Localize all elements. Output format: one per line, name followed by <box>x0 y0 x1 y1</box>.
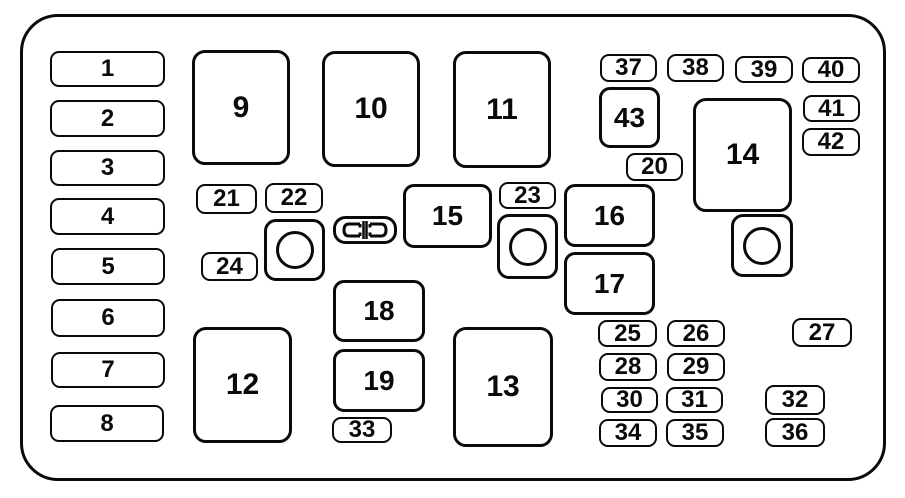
box-12: 12 <box>193 327 292 443</box>
element-number: 31 <box>681 388 708 412</box>
element-number: 4 <box>101 205 114 229</box>
fuse-25: 25 <box>598 320 657 347</box>
element-number: 20 <box>641 155 668 179</box>
fuse-4: 4 <box>50 198 165 235</box>
box-9: 9 <box>192 50 290 165</box>
fuse-28: 28 <box>599 353 657 381</box>
element-number: 19 <box>363 367 394 395</box>
relay-circle <box>276 231 314 269</box>
fuse-39: 39 <box>735 56 793 83</box>
element-number: 1 <box>101 57 114 81</box>
element-number: 3 <box>101 156 114 180</box>
element-number: 16 <box>594 202 625 230</box>
fuse-puller-icon <box>333 216 397 244</box>
box-14: 14 <box>693 98 792 212</box>
element-number: 43 <box>614 104 645 132</box>
fuse-3: 3 <box>50 150 165 186</box>
element-number: 14 <box>726 140 759 170</box>
element-number: 32 <box>782 388 809 412</box>
element-number: 10 <box>354 94 387 124</box>
fuse-21: 21 <box>196 184 257 214</box>
fuse-31: 31 <box>666 387 723 413</box>
element-number: 30 <box>616 388 643 412</box>
fuse-34: 34 <box>599 419 657 447</box>
fuse-30: 30 <box>601 387 658 413</box>
box-13: 13 <box>453 327 553 447</box>
box-11: 11 <box>453 51 551 168</box>
fuse-2: 2 <box>50 100 165 137</box>
element-number: 13 <box>486 372 519 402</box>
fuse-27: 27 <box>792 318 852 347</box>
element-number: 22 <box>281 186 308 210</box>
fuse-37: 37 <box>600 54 657 82</box>
fuse-8: 8 <box>50 405 164 442</box>
relay-circle-box-center <box>497 214 558 279</box>
relay-circle-box-right <box>731 214 793 277</box>
element-number: 7 <box>101 358 114 382</box>
box-16: 16 <box>564 184 655 247</box>
element-number: 15 <box>432 202 463 230</box>
fuse-40: 40 <box>802 57 860 83</box>
element-number: 28 <box>615 355 642 379</box>
element-number: 26 <box>683 322 710 346</box>
fuse-32: 32 <box>765 385 825 415</box>
element-number: 11 <box>486 95 518 125</box>
element-number: 6 <box>101 306 114 330</box>
element-number: 34 <box>615 421 642 445</box>
fuse-24: 24 <box>201 252 258 281</box>
element-number: 39 <box>751 58 778 82</box>
fuse-36: 36 <box>765 418 825 447</box>
fuse-29: 29 <box>667 353 725 381</box>
element-number: 36 <box>782 421 809 445</box>
fuse-38: 38 <box>667 54 724 82</box>
element-number: 8 <box>100 412 113 436</box>
box-43: 43 <box>599 87 660 148</box>
element-number: 41 <box>818 97 845 121</box>
element-number: 38 <box>682 56 709 80</box>
fuse-20: 20 <box>626 153 683 181</box>
box-10: 10 <box>322 51 420 167</box>
element-number: 33 <box>349 418 376 442</box>
element-number: 35 <box>682 421 709 445</box>
fuse-41: 41 <box>803 95 860 122</box>
element-number: 9 <box>233 93 250 123</box>
relay-circle-box-left <box>264 219 325 281</box>
fuse-42: 42 <box>802 128 860 156</box>
element-number: 40 <box>818 58 845 82</box>
box-18: 18 <box>333 280 425 342</box>
element-number: 37 <box>615 56 642 80</box>
element-number: 23 <box>514 184 541 208</box>
fuse-26: 26 <box>667 320 725 347</box>
element-number: 17 <box>594 270 625 298</box>
element-number: 29 <box>683 355 710 379</box>
element-number: 21 <box>213 187 240 211</box>
element-number: 25 <box>614 322 641 346</box>
fuse-6: 6 <box>51 299 165 337</box>
box-19: 19 <box>333 349 425 412</box>
box-17: 17 <box>564 252 655 315</box>
element-number: 24 <box>216 255 243 279</box>
box-15: 15 <box>403 184 492 248</box>
relay-circle <box>509 228 547 266</box>
fuse-box-diagram: 1234567891011121314151617181943202122232… <box>0 0 905 498</box>
element-number: 12 <box>226 370 259 400</box>
fuse-23: 23 <box>499 182 556 209</box>
element-number: 5 <box>101 255 114 279</box>
fuse-7: 7 <box>51 352 165 388</box>
fuse-1: 1 <box>50 51 165 87</box>
element-number: 42 <box>818 130 845 154</box>
relay-circle <box>743 227 781 265</box>
element-number: 18 <box>363 297 394 325</box>
fuse-35: 35 <box>666 419 724 447</box>
fuse-22: 22 <box>265 183 323 213</box>
element-number: 2 <box>101 107 114 131</box>
fuse-33: 33 <box>332 417 392 443</box>
fuse-5: 5 <box>51 248 165 285</box>
element-number: 27 <box>809 321 836 345</box>
